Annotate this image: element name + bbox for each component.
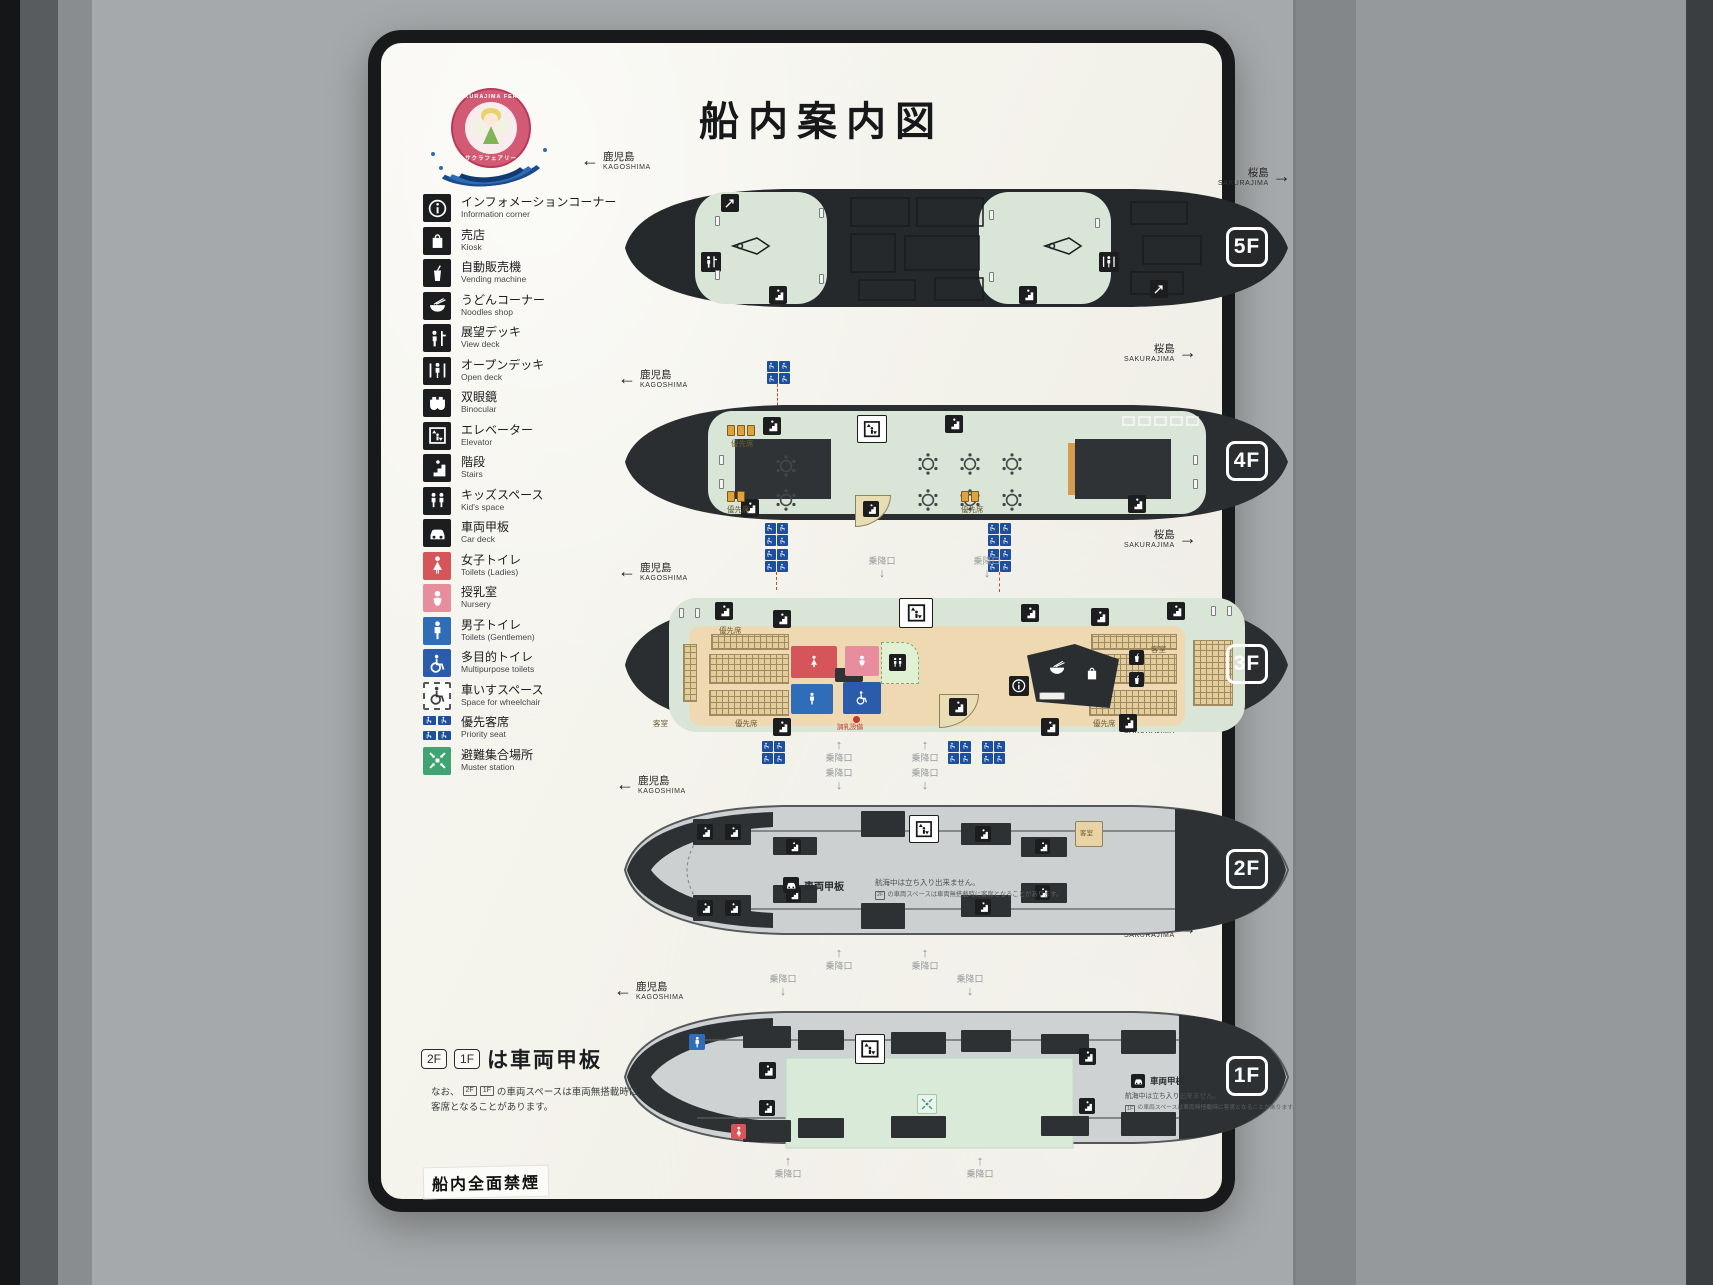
legend-row-kiosk: 売店Kiosk (423, 227, 616, 255)
elevator-icon (423, 422, 451, 450)
logo-text-top: SAKURAJIMA FERRY (453, 94, 529, 100)
door-mark (989, 272, 994, 282)
deck-2f-hull (623, 795, 1291, 945)
wall-panel-left (20, 0, 58, 1285)
stair-housing (1121, 1112, 1176, 1136)
stairs-icon (945, 415, 963, 433)
priority-seat-label: 優先席 (719, 627, 742, 635)
legend-row-nursery: 授乳室Nursery (423, 584, 616, 612)
boarding-gate-label: ↑乗降口 (958, 1154, 1002, 1179)
deck-structure (891, 1032, 946, 1054)
car-deck-icon (1131, 1074, 1145, 1088)
ladies-toilet-icon (731, 1124, 746, 1139)
multipurpose-toilet-icon (423, 649, 451, 677)
stairs-icon (1079, 1098, 1095, 1114)
door-mark (679, 608, 684, 618)
deck-plan-4f: 優先席 優先席 優先席 (623, 395, 1291, 530)
direction-kagoshima-4f: ←鹿児島KAGOSHIMA (618, 370, 688, 389)
round-table-icon (915, 451, 941, 477)
wall-panel-left2 (58, 0, 92, 1285)
kids-space-icon (423, 487, 451, 515)
door-mark (1211, 606, 1216, 616)
stairs-icon (1079, 1048, 1096, 1065)
stairs-icon (1041, 718, 1059, 736)
kiosk-counter-shelf (1039, 692, 1065, 700)
priority-seat-label: 優先席 (735, 720, 758, 728)
legend-row-view-deck: 展望デッキView deck (423, 324, 616, 352)
floor-badge-5f: 5F (1226, 227, 1268, 267)
priority-seat-icon (423, 714, 451, 742)
gents-toilet-room (791, 684, 833, 714)
ladies-toilet-icon (423, 552, 451, 580)
deck-structure (1041, 1116, 1089, 1136)
round-table-icon (957, 451, 983, 477)
car-deck-icon (423, 519, 451, 547)
gents-toilet-icon (423, 617, 451, 645)
floor-box-2f: 2F (421, 1049, 447, 1069)
vending-machine-icon (423, 259, 451, 287)
wall-background: SAKURAJIMA FERRY サクラフェアリー 船内案内図 インフォメーショ… (0, 0, 1713, 1285)
direction-kagoshima-3f: ←鹿児島KAGOSHIMA (618, 563, 688, 582)
view-deck-icon (701, 252, 721, 272)
door-mark (989, 210, 994, 220)
stairs-icon (975, 899, 991, 915)
stairs-icon (786, 839, 801, 854)
stairs-icon (697, 900, 713, 916)
elevator-icon (855, 1034, 885, 1064)
deck-structure (798, 1030, 844, 1050)
noodles-corner-icon (1047, 658, 1067, 678)
small-cabin: 客室 (1075, 821, 1103, 847)
kiosk-icon (1083, 664, 1101, 682)
elevator-icon (909, 815, 939, 843)
cabin-label: 客室 (1080, 831, 1093, 838)
door-mark (695, 608, 700, 618)
round-table-icon (999, 451, 1025, 477)
priority-seat-marks (727, 491, 745, 502)
information-icon (1009, 676, 1029, 696)
footer-note-line1: なお、 2F 1F の車両スペースは車両無搭載時に (431, 1084, 638, 1098)
priority-seat-marks (961, 491, 979, 502)
priority-seat-label: 優先席 (727, 506, 750, 514)
stairs-icon (1035, 839, 1050, 854)
deck-plan-2f: 客室 車両甲板 航海中は立ち入り出来ません。 2Fの車両スペースは車両無搭載時に… (623, 795, 1291, 945)
stairs-icon (423, 454, 451, 482)
deck-plan-1f: 車両甲板 航海中は立ち入り出来ません。 1Fの車両スペースは車両無搭載時に客席と… (623, 1000, 1291, 1155)
noodles-corner-icon (423, 292, 451, 320)
logo-dot (543, 148, 547, 152)
ladies-toilet-room (791, 646, 837, 678)
priority-seat-cluster (988, 523, 1011, 546)
boarding-gate-label: 乗降口↓ (903, 768, 947, 793)
nursery-icon (423, 584, 451, 612)
legend-row-kids-space: キッズスペースKid's space (423, 487, 616, 515)
priority-seat-cluster (767, 361, 790, 384)
stairs-icon (725, 900, 741, 916)
round-table-icon (773, 453, 799, 479)
sign-title: 船内案内図 (699, 89, 979, 147)
ship-guide-sign-board: SAKURAJIMA FERRY サクラフェアリー 船内案内図 インフォメーショ… (368, 30, 1235, 1212)
seat-block (683, 644, 697, 702)
door-mark (719, 479, 724, 489)
deck-structure (861, 903, 905, 929)
legend-row-car-deck: 車両甲板Car deck (423, 519, 616, 547)
deck-plan-3f: 優先席 優先席 優先席 優先席 客室 客室 調乳設備 (623, 590, 1291, 740)
sakurajima-ferry-logo: SAKURAJIMA FERRY サクラフェアリー (425, 88, 557, 192)
boarding-gate-label: 乗降口↓ (965, 556, 1009, 581)
gents-toilet-icon (803, 689, 821, 709)
nursery-prep-marker (853, 716, 860, 723)
stairs-icon (769, 286, 787, 304)
round-table-icon (999, 487, 1025, 513)
legend-row-multipurpose-toilet: 多目的トイレMultipurpose toilets (423, 649, 616, 677)
multipurpose-toilet-icon (852, 688, 872, 708)
no-smoking-label: 船内全面禁煙 (423, 1165, 550, 1200)
ladies-toilet-icon (805, 652, 823, 672)
car-deck-note: 航海中は立ち入り出来ません。 (875, 879, 980, 887)
facility-legend: インフォメーションコーナーInformation corner 売店Kiosk … (423, 194, 616, 775)
logo-dot (431, 152, 435, 156)
wind-vane-mark (731, 236, 771, 256)
priority-seat-marks (727, 425, 755, 436)
floor-badge-4f: 4F (1226, 441, 1268, 481)
legend-row-information: インフォメーションコーナーInformation corner (423, 194, 616, 222)
car-deck-label-group: 車両甲板 (783, 877, 844, 893)
door-mark (715, 270, 720, 280)
direction-sakurajima-3f: 桜島SAKURAJIMA→ (1124, 530, 1197, 549)
wall-panel-right (1296, 0, 1356, 1285)
nursery-icon (853, 651, 871, 671)
stairs-icon (773, 610, 791, 628)
stairs-icon (1128, 495, 1146, 513)
slide-arrow-icon (721, 194, 739, 212)
nursery-prep-label: 調乳設備 (837, 725, 863, 732)
slide-arrow-icon (1150, 280, 1168, 298)
priority-seat-cluster (765, 523, 788, 546)
boarding-gate-label: ↑乗降口 (817, 738, 861, 763)
priority-seat-cluster (762, 741, 785, 764)
stairs-icon (725, 824, 741, 840)
stairs-icon (949, 698, 967, 716)
wall-panel-right2 (1356, 0, 1686, 1285)
kiosk-icon (423, 227, 451, 255)
direction-kagoshima-2f: ←鹿児島KAGOSHIMA (616, 776, 686, 795)
direction-sakurajima-4f: 桜島SAKURAJIMA→ (1124, 344, 1197, 363)
deck-1f-hull (623, 1000, 1291, 1155)
legend-row-muster-station: 避難集合場所Muster station (423, 747, 616, 775)
deck-structure (891, 1116, 946, 1138)
nursery-room (845, 646, 879, 676)
priority-seat-cluster (982, 741, 1005, 764)
boarding-gate-label: ↑乗降口 (766, 1154, 810, 1179)
car-deck-subnote: 2Fの車両スペースは車両無搭載時に客席となることがあります。 (875, 891, 1062, 900)
wind-vane-mark (1043, 236, 1083, 256)
legend-row-gents-toilet: 男子トイレToilets (Gentlemen) (423, 617, 616, 645)
legend-row-vending: 自動販売機Vending machine (423, 259, 616, 287)
priority-seat-cluster (765, 549, 788, 572)
boarding-gate-label: 乗降口↓ (817, 768, 861, 793)
door-mark (1227, 606, 1232, 616)
seat-block (711, 634, 789, 650)
round-table-icon (915, 487, 941, 513)
legend-row-stairs: 階段Stairs (423, 454, 616, 482)
stairs-icon (759, 1100, 775, 1116)
boarding-gate-label: 乗降口↓ (948, 974, 992, 999)
boarding-gate-label: 乗降口↓ (860, 556, 904, 581)
deck-structure (861, 811, 905, 837)
direction-kagoshima-1f: ←鹿児島KAGOSHIMA (614, 982, 684, 1001)
priority-seat-cluster (948, 741, 971, 764)
stairs-icon (1167, 602, 1185, 620)
legend-row-wheelchair-space: 車いすスペースSpace for wheelchair (423, 682, 616, 710)
boarding-gate-label: ↑乗降口 (817, 946, 861, 971)
seat-block (709, 654, 789, 684)
floor-badge-3f: 3F (1226, 644, 1268, 684)
legend-row-noodles: うどんコーナーNoodles shop (423, 292, 616, 320)
car-deck-note: 航海中は立ち入り出来ません。 (1125, 1094, 1220, 1101)
wall-panel-edge-right (1686, 0, 1713, 1285)
stairs-icon (759, 1062, 776, 1079)
footer-car-deck-line: 2F 1F は車両甲板 (421, 1044, 602, 1074)
floor-box-1f: 1F (454, 1049, 480, 1069)
stairs-icon (773, 718, 791, 736)
logo-ring: SAKURAJIMA FERRY サクラフェアリー (451, 88, 531, 168)
footer-note-line2: 客席となることがあります。 (431, 1099, 553, 1113)
car-deck-icon (783, 877, 799, 893)
kids-space-icon (889, 654, 906, 671)
vending-machine-icon (1129, 672, 1144, 687)
stair-housing (743, 1120, 791, 1142)
legend-row-binocular: 双眼鏡Binocular (423, 389, 616, 417)
boarding-gate-label: 乗降口↓ (761, 974, 805, 999)
priority-seat-label: 優先席 (1093, 720, 1116, 728)
binoculars-icon (423, 389, 451, 417)
elevator-icon (899, 598, 933, 628)
open-deck-icon (423, 357, 451, 385)
priority-seat-label: 優先席 (731, 440, 754, 448)
door-mark (719, 455, 724, 465)
stairs-icon (1119, 714, 1137, 732)
muster-station-icon (423, 747, 451, 775)
door-mark (1193, 455, 1198, 465)
door-mark (819, 274, 824, 284)
stairs-icon (697, 824, 713, 840)
car-deck-label-group: 車両甲板 (1131, 1074, 1184, 1088)
door-mark (715, 216, 720, 226)
vending-machine-icon (1129, 650, 1144, 665)
elevator-icon (857, 415, 887, 443)
logo-text-bottom: サクラフェアリー (453, 154, 529, 162)
view-deck-icon (423, 324, 451, 352)
stairs-icon (863, 501, 879, 517)
stairs-icon (1091, 608, 1109, 626)
stairs-icon (715, 602, 733, 620)
priority-seat-label: 優先席 (961, 506, 984, 514)
door-mark (819, 208, 824, 218)
stairs-icon (1019, 286, 1037, 304)
legend-row-priority-seat: 優先客席Priority seat (423, 714, 616, 742)
door-mark (1193, 479, 1198, 489)
wall-panel-edge-left (0, 0, 20, 1285)
logo-fairy-mascot (465, 102, 517, 154)
information-icon (423, 194, 451, 222)
multipurpose-toilet-room (843, 682, 881, 714)
round-table-icon (773, 487, 799, 513)
cabin-label: 客室 (653, 720, 668, 728)
legend-row-open-deck: オープンデッキOpen deck (423, 357, 616, 385)
stairs-icon (975, 826, 991, 842)
legend-row-ladies-toilet: 女子トイレToilets (Ladies) (423, 552, 616, 580)
gents-toilet-icon (689, 1034, 705, 1050)
deck-structure (798, 1118, 844, 1138)
wheelchair-space-icon (423, 682, 451, 710)
floor-badge-2f: 2F (1226, 849, 1268, 889)
stair-housing (1121, 1030, 1176, 1054)
cabin-label: 客室 (1151, 646, 1166, 654)
logo-dot (439, 166, 443, 170)
seat-block (709, 690, 789, 716)
muster-station-icon (917, 1094, 937, 1114)
door-mark (1095, 218, 1100, 228)
boarding-gate-label: ↑乗降口 (903, 946, 947, 971)
stair-housing (961, 1030, 1011, 1052)
deck-plan-5f (623, 178, 1291, 318)
floor-badge-1f: 1F (1226, 1056, 1268, 1096)
open-deck-icon (1099, 252, 1119, 272)
stair-housing (743, 1026, 791, 1048)
boarding-gate-label: ↑乗降口 (903, 738, 947, 763)
direction-kagoshima-5f: ←鹿児島KAGOSHIMA (581, 152, 651, 171)
legend-row-elevator: エレベーターElevator (423, 422, 616, 450)
priority-connector-line (776, 572, 777, 590)
stairs-icon (763, 417, 781, 435)
stairs-icon (1021, 604, 1039, 622)
